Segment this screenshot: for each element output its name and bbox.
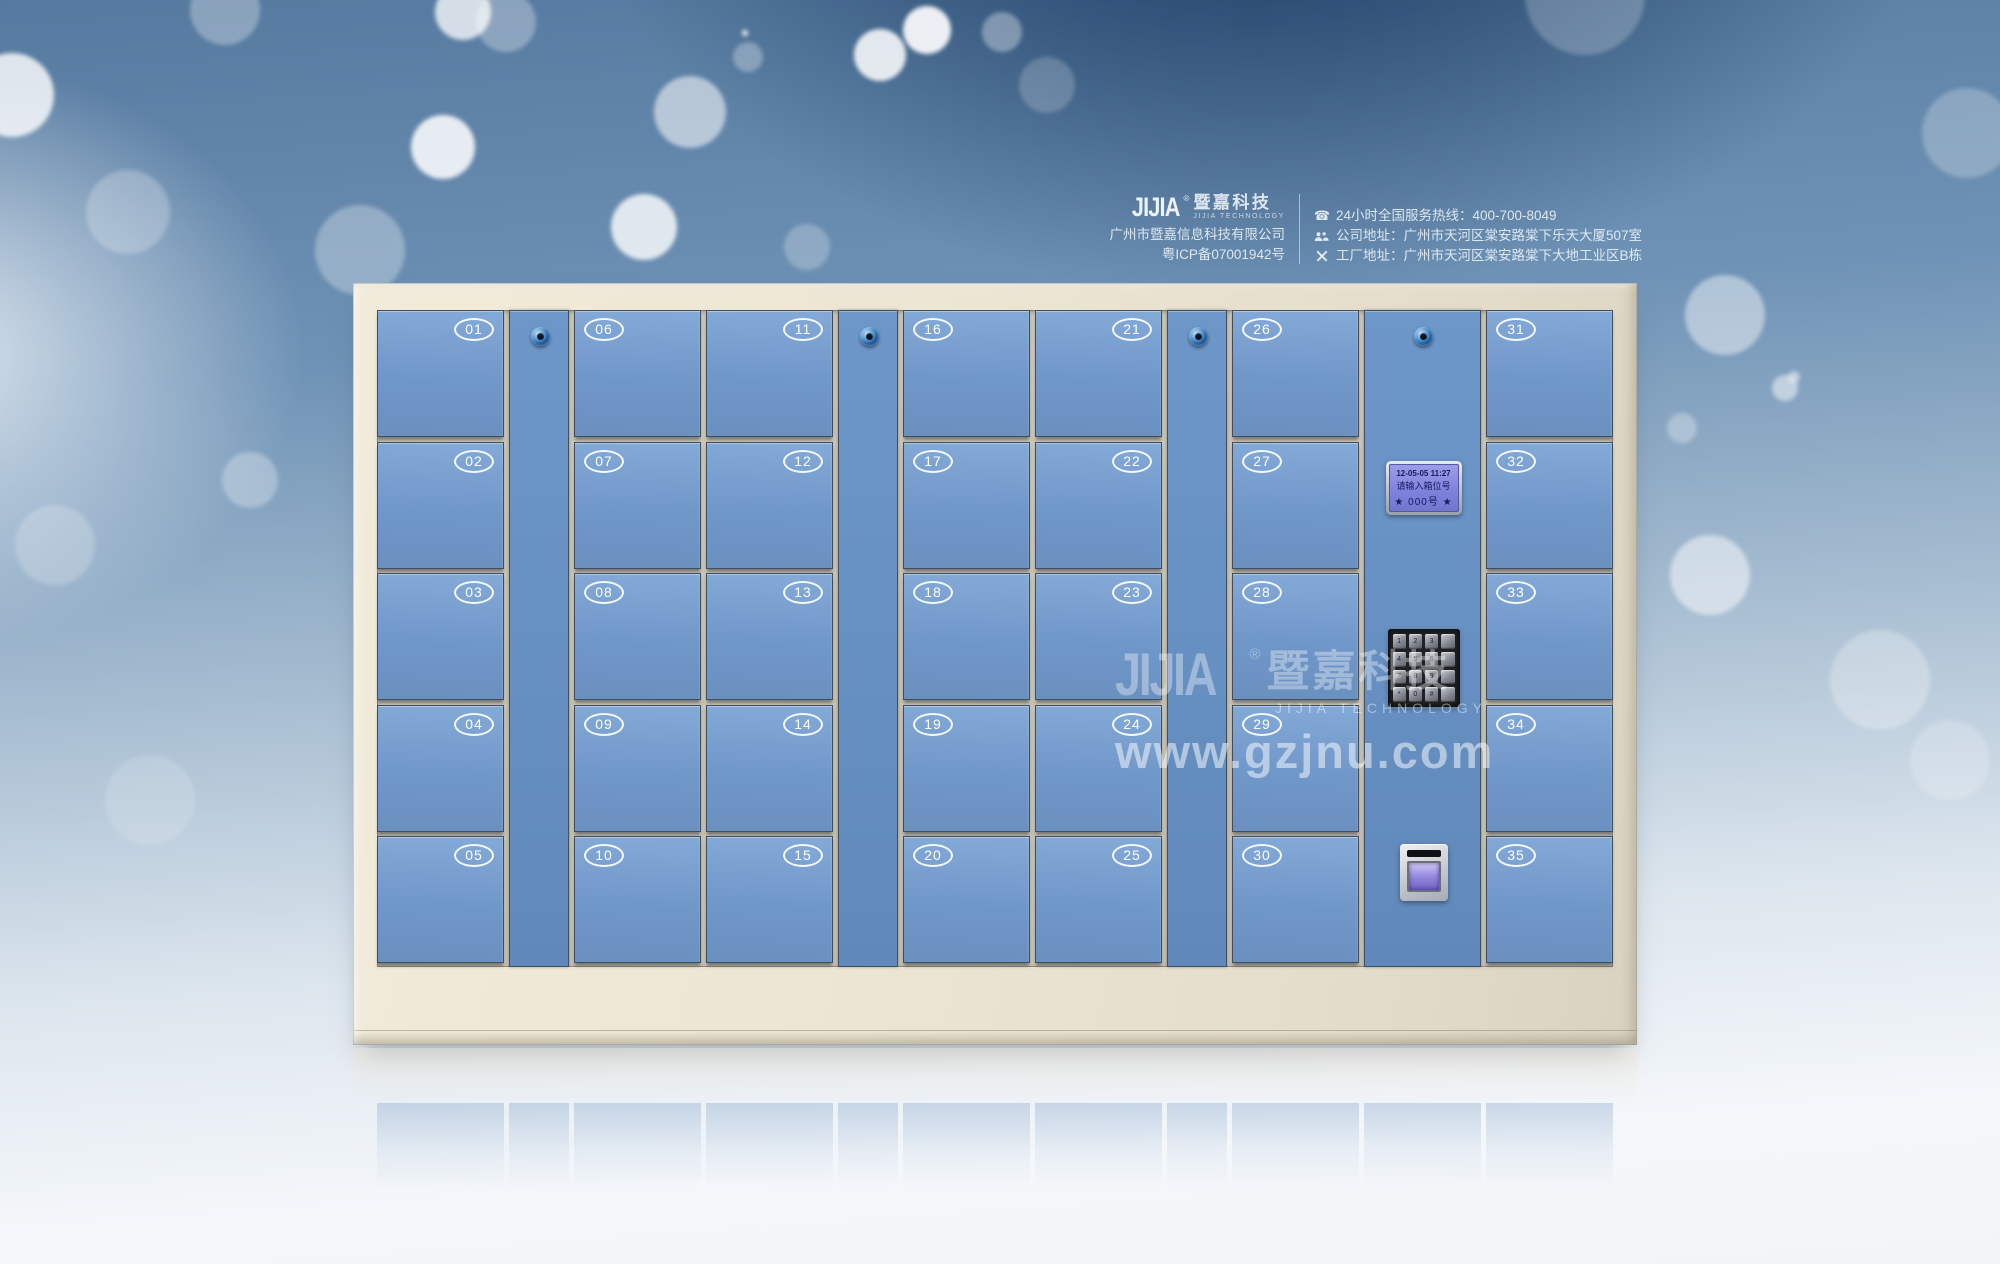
hotline-line: ☎ 24小时全国服务热线：400-700-8049	[1314, 208, 1642, 224]
keypad-key-5[interactable]: 5	[1409, 652, 1422, 667]
bokeh-circle	[476, 0, 536, 52]
door-number-badge: 14	[783, 713, 823, 736]
key-lock[interactable]	[531, 327, 550, 346]
locker-door-02[interactable]: 02	[377, 442, 504, 569]
locker-door-05[interactable]: 05	[377, 836, 504, 963]
reflection-column	[1486, 1103, 1613, 1189]
lcd-text-line2: 请输入箱位号	[1396, 479, 1450, 492]
reflection-column	[838, 1103, 898, 1189]
bokeh-circle	[411, 115, 475, 179]
reflection-column	[574, 1103, 701, 1189]
reflection-column	[706, 1103, 833, 1189]
bokeh-circle	[1667, 413, 1697, 443]
bokeh-circle	[1830, 630, 1930, 730]
door-number-badge: 35	[1496, 844, 1536, 867]
lock-panel	[838, 310, 898, 967]
keypad[interactable]: 123456789*0#	[1388, 629, 1460, 707]
door-number-badge: 23	[1112, 581, 1152, 604]
keypad-key-1[interactable]: 1	[1393, 634, 1406, 649]
door-number-badge: 25	[1112, 844, 1152, 867]
door-number-badge: 24	[1112, 713, 1152, 736]
locker-door-04[interactable]: 04	[377, 705, 504, 832]
door-number-badge: 31	[1496, 318, 1536, 341]
locker-door-13[interactable]: 13	[706, 573, 833, 700]
keypad-key-#[interactable]: #	[1425, 687, 1438, 702]
door-number-badge: 15	[783, 844, 823, 867]
locker-cabinet: 0102030405060708091011121314151617181920…	[353, 283, 1637, 1045]
door-number-badge: 28	[1242, 581, 1282, 604]
locker-door-14[interactable]: 14	[706, 705, 833, 832]
company-address-line: 公司地址：广州市天河区棠安路棠下乐天大厦507室	[1314, 228, 1642, 244]
bokeh-circle	[1910, 720, 1990, 800]
locker-door-28[interactable]: 28	[1232, 573, 1359, 700]
locker-door-11[interactable]: 11	[706, 310, 833, 437]
door-number-badge: 06	[584, 318, 624, 341]
bokeh-circle	[190, 0, 260, 45]
locker-door-31[interactable]: 31	[1486, 310, 1613, 437]
company-address-text: 公司地址：广州市天河区棠安路棠下乐天大厦507室	[1336, 228, 1642, 244]
door-number-badge: 22	[1112, 450, 1152, 473]
door-number-badge: 18	[913, 581, 953, 604]
locker-door-18[interactable]: 18	[903, 573, 1030, 700]
door-number-badge: 10	[584, 844, 624, 867]
door-number-badge: 34	[1496, 713, 1536, 736]
reflection-frame-band	[353, 1048, 1637, 1102]
locker-door-07[interactable]: 07	[574, 442, 701, 569]
keyhole-icon	[1420, 333, 1427, 340]
keypad-key-blank[interactable]	[1441, 687, 1454, 702]
locker-door-19[interactable]: 19	[903, 705, 1030, 832]
door-number-badge: 26	[1242, 318, 1282, 341]
door-number-badge: 32	[1496, 450, 1536, 473]
reflection-column	[509, 1103, 569, 1189]
key-lock[interactable]	[860, 327, 879, 346]
key-lock[interactable]	[1189, 327, 1208, 346]
lcd-screen: 12-05-05 11:27请输入箱位号★ 000号 ★	[1389, 464, 1459, 512]
keypad-key-blank[interactable]	[1441, 634, 1454, 649]
factory-address-line: 工厂地址：广州市天河区棠安路棠下大地工业区B栋	[1314, 248, 1642, 264]
door-number-badge: 30	[1242, 844, 1282, 867]
locker-grid: 0102030405060708091011121314151617181920…	[377, 310, 1613, 967]
door-number-badge: 33	[1496, 581, 1536, 604]
bokeh-circle	[15, 505, 95, 585]
door-number-badge: 11	[783, 318, 823, 341]
locker-door-32[interactable]: 32	[1486, 442, 1613, 569]
door-number-badge: 09	[584, 713, 624, 736]
door-number-badge: 02	[454, 450, 494, 473]
fingerprint-slot	[1407, 850, 1441, 857]
control-panel: 12-05-05 11:27请输入箱位号★ 000号 ★123456789*0#	[1364, 310, 1481, 967]
keypad-key-0[interactable]: 0	[1409, 687, 1422, 702]
fingerprint-window	[1407, 861, 1441, 892]
keypad-key-*[interactable]: *	[1393, 687, 1406, 702]
keypad-key-4[interactable]: 4	[1393, 652, 1406, 667]
bokeh-circle	[222, 452, 278, 508]
logo-english-name: JIJIA TECHNOLOGY	[1193, 212, 1285, 221]
control-key-lock[interactable]	[1414, 327, 1433, 346]
reflection-column	[1167, 1103, 1227, 1189]
door-number-badge: 29	[1242, 713, 1282, 736]
lcd-text-line1: 12-05-05 11:27	[1396, 469, 1450, 478]
lcd-display: 12-05-05 11:27请输入箱位号★ 000号 ★	[1386, 461, 1462, 515]
header-contact-block: ☎ 24小时全国服务热线：400-700-8049 公司地址：广州市天河区棠安路…	[1314, 194, 1642, 264]
lcd-text-line3: ★ 000号 ★	[1394, 493, 1452, 508]
keyhole-icon	[1195, 333, 1202, 340]
door-number-badge: 13	[783, 581, 823, 604]
keyhole-icon	[866, 333, 873, 340]
bokeh-circle	[1772, 375, 1798, 401]
door-number-badge: 16	[913, 318, 953, 341]
locker-door-33[interactable]: 33	[1486, 573, 1613, 700]
bokeh-circle	[742, 30, 748, 36]
locker-door-12[interactable]: 12	[706, 442, 833, 569]
header-brand-block: JIJIA ® 暨嘉科技 JIJIA TECHNOLOGY 广州市暨嘉信息科技有…	[1109, 194, 1285, 264]
locker-door-09[interactable]: 09	[574, 705, 701, 832]
bokeh-circle	[903, 6, 951, 54]
reflection-column	[377, 1103, 504, 1189]
keypad-key-7[interactable]: 7	[1393, 670, 1406, 685]
locker-door-10[interactable]: 10	[574, 836, 701, 963]
bokeh-circle	[854, 29, 906, 81]
locker-door-25[interactable]: 25	[1035, 836, 1162, 963]
keypad-key-8[interactable]: 8	[1409, 670, 1422, 685]
bokeh-circle	[86, 170, 170, 254]
locker-door-35[interactable]: 35	[1486, 836, 1613, 963]
bokeh-circle	[1525, 0, 1645, 55]
company-name: 广州市暨嘉信息科技有限公司	[1109, 225, 1285, 245]
keypad-key-6[interactable]: 6	[1425, 652, 1438, 667]
cabinet-base-edge	[353, 1030, 1637, 1045]
door-number-badge: 20	[913, 844, 953, 867]
door-number-badge: 05	[454, 844, 494, 867]
reflection-column	[1035, 1103, 1162, 1189]
locker-door-22[interactable]: 22	[1035, 442, 1162, 569]
door-number-badge: 01	[454, 318, 494, 341]
locker-door-27[interactable]: 27	[1232, 442, 1359, 569]
tools-icon	[1314, 250, 1330, 262]
keypad-key-3[interactable]: 3	[1425, 634, 1438, 649]
header-info: JIJIA ® 暨嘉科技 JIJIA TECHNOLOGY 广州市暨嘉信息科技有…	[1109, 194, 1642, 264]
locker-door-24[interactable]: 24	[1035, 705, 1162, 832]
locker-door-01[interactable]: 01	[377, 310, 504, 437]
bokeh-circle	[1685, 275, 1765, 355]
bokeh-circle	[1922, 88, 2000, 178]
door-number-badge: 19	[913, 713, 953, 736]
locker-door-29[interactable]: 29	[1232, 705, 1359, 832]
floor-reflection	[353, 1046, 1637, 1216]
locker-door-30[interactable]: 30	[1232, 836, 1359, 963]
door-number-badge: 07	[584, 450, 624, 473]
registered-mark-icon: ®	[1183, 194, 1189, 204]
locker-door-03[interactable]: 03	[377, 573, 504, 700]
locker-door-23[interactable]: 23	[1035, 573, 1162, 700]
bokeh-circle	[1019, 57, 1075, 113]
fingerprint-reader[interactable]	[1400, 844, 1448, 901]
bokeh-circle	[982, 12, 1022, 52]
door-number-badge: 27	[1242, 450, 1282, 473]
locker-door-20[interactable]: 20	[903, 836, 1030, 963]
header-divider	[1299, 194, 1300, 264]
bokeh-circle	[733, 42, 763, 72]
keypad-key-9[interactable]: 9	[1425, 670, 1438, 685]
door-number-badge: 21	[1112, 318, 1152, 341]
door-number-badge: 03	[454, 581, 494, 604]
door-number-badge: 17	[913, 450, 953, 473]
hotline-text: 24小时全国服务热线：400-700-8049	[1336, 208, 1557, 224]
bokeh-circle	[1788, 371, 1800, 383]
bokeh-circle	[784, 224, 830, 270]
locker-door-06[interactable]: 06	[574, 310, 701, 437]
bokeh-circle	[315, 205, 405, 295]
keyhole-icon	[537, 333, 544, 340]
door-number-badge: 04	[454, 713, 494, 736]
door-number-badge: 08	[584, 581, 624, 604]
bokeh-circle	[435, 0, 491, 40]
scene: JIJIA ® 暨嘉科技 JIJIA TECHNOLOGY 广州市暨嘉信息科技有…	[0, 0, 2000, 1264]
reflection-column	[1364, 1103, 1481, 1189]
icp-number: 粤ICP备07001942号	[1109, 245, 1285, 264]
bokeh-circle	[654, 76, 726, 148]
factory-address-text: 工厂地址：广州市天河区棠安路棠下大地工业区B栋	[1336, 248, 1642, 264]
keypad-key-2[interactable]: 2	[1409, 634, 1422, 649]
bokeh-circle	[1670, 535, 1750, 615]
bokeh-circle	[611, 194, 677, 260]
door-number-badge: 12	[783, 450, 823, 473]
jijia-logo: JIJIA	[1132, 194, 1180, 220]
bokeh-circle	[105, 755, 195, 845]
locker-door-16[interactable]: 16	[903, 310, 1030, 437]
keypad-key-blank[interactable]	[1441, 652, 1454, 667]
locker-door-21[interactable]: 21	[1035, 310, 1162, 437]
bokeh-circle	[0, 53, 54, 137]
locker-door-08[interactable]: 08	[574, 573, 701, 700]
locker-door-15[interactable]: 15	[706, 836, 833, 963]
locker-door-34[interactable]: 34	[1486, 705, 1613, 832]
reflection-column	[903, 1103, 1030, 1189]
people-icon	[1314, 231, 1330, 242]
lock-panel	[1167, 310, 1227, 967]
reflection-column	[1232, 1103, 1359, 1189]
locker-door-26[interactable]: 26	[1232, 310, 1359, 437]
keypad-key-blank[interactable]	[1441, 670, 1454, 685]
logo-chinese-name: 暨嘉科技	[1193, 194, 1271, 212]
phone-icon: ☎	[1314, 208, 1330, 224]
lock-panel	[509, 310, 569, 967]
locker-door-17[interactable]: 17	[903, 442, 1030, 569]
